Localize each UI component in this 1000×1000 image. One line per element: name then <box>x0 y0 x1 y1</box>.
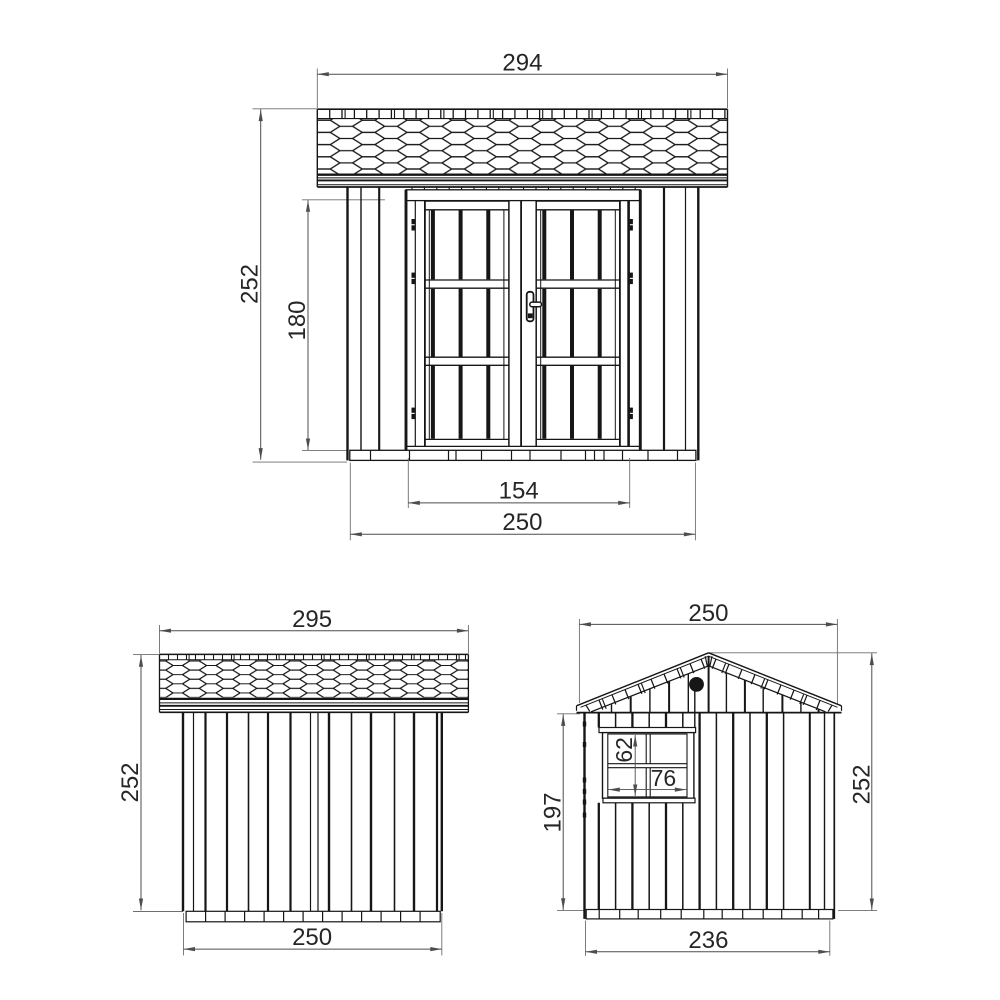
svg-text:154: 154 <box>499 478 539 505</box>
svg-text:252: 252 <box>117 762 144 802</box>
svg-text:62: 62 <box>611 737 637 763</box>
svg-text:250: 250 <box>688 600 728 627</box>
svg-text:294: 294 <box>502 50 542 77</box>
svg-text:197: 197 <box>539 792 566 832</box>
svg-text:252: 252 <box>237 264 264 304</box>
svg-text:252: 252 <box>848 764 875 804</box>
svg-text:236: 236 <box>688 927 728 954</box>
svg-text:180: 180 <box>284 300 311 340</box>
svg-text:295: 295 <box>292 606 332 633</box>
svg-text:76: 76 <box>651 765 677 791</box>
svg-text:250: 250 <box>292 924 332 951</box>
svg-text:250: 250 <box>502 509 542 536</box>
